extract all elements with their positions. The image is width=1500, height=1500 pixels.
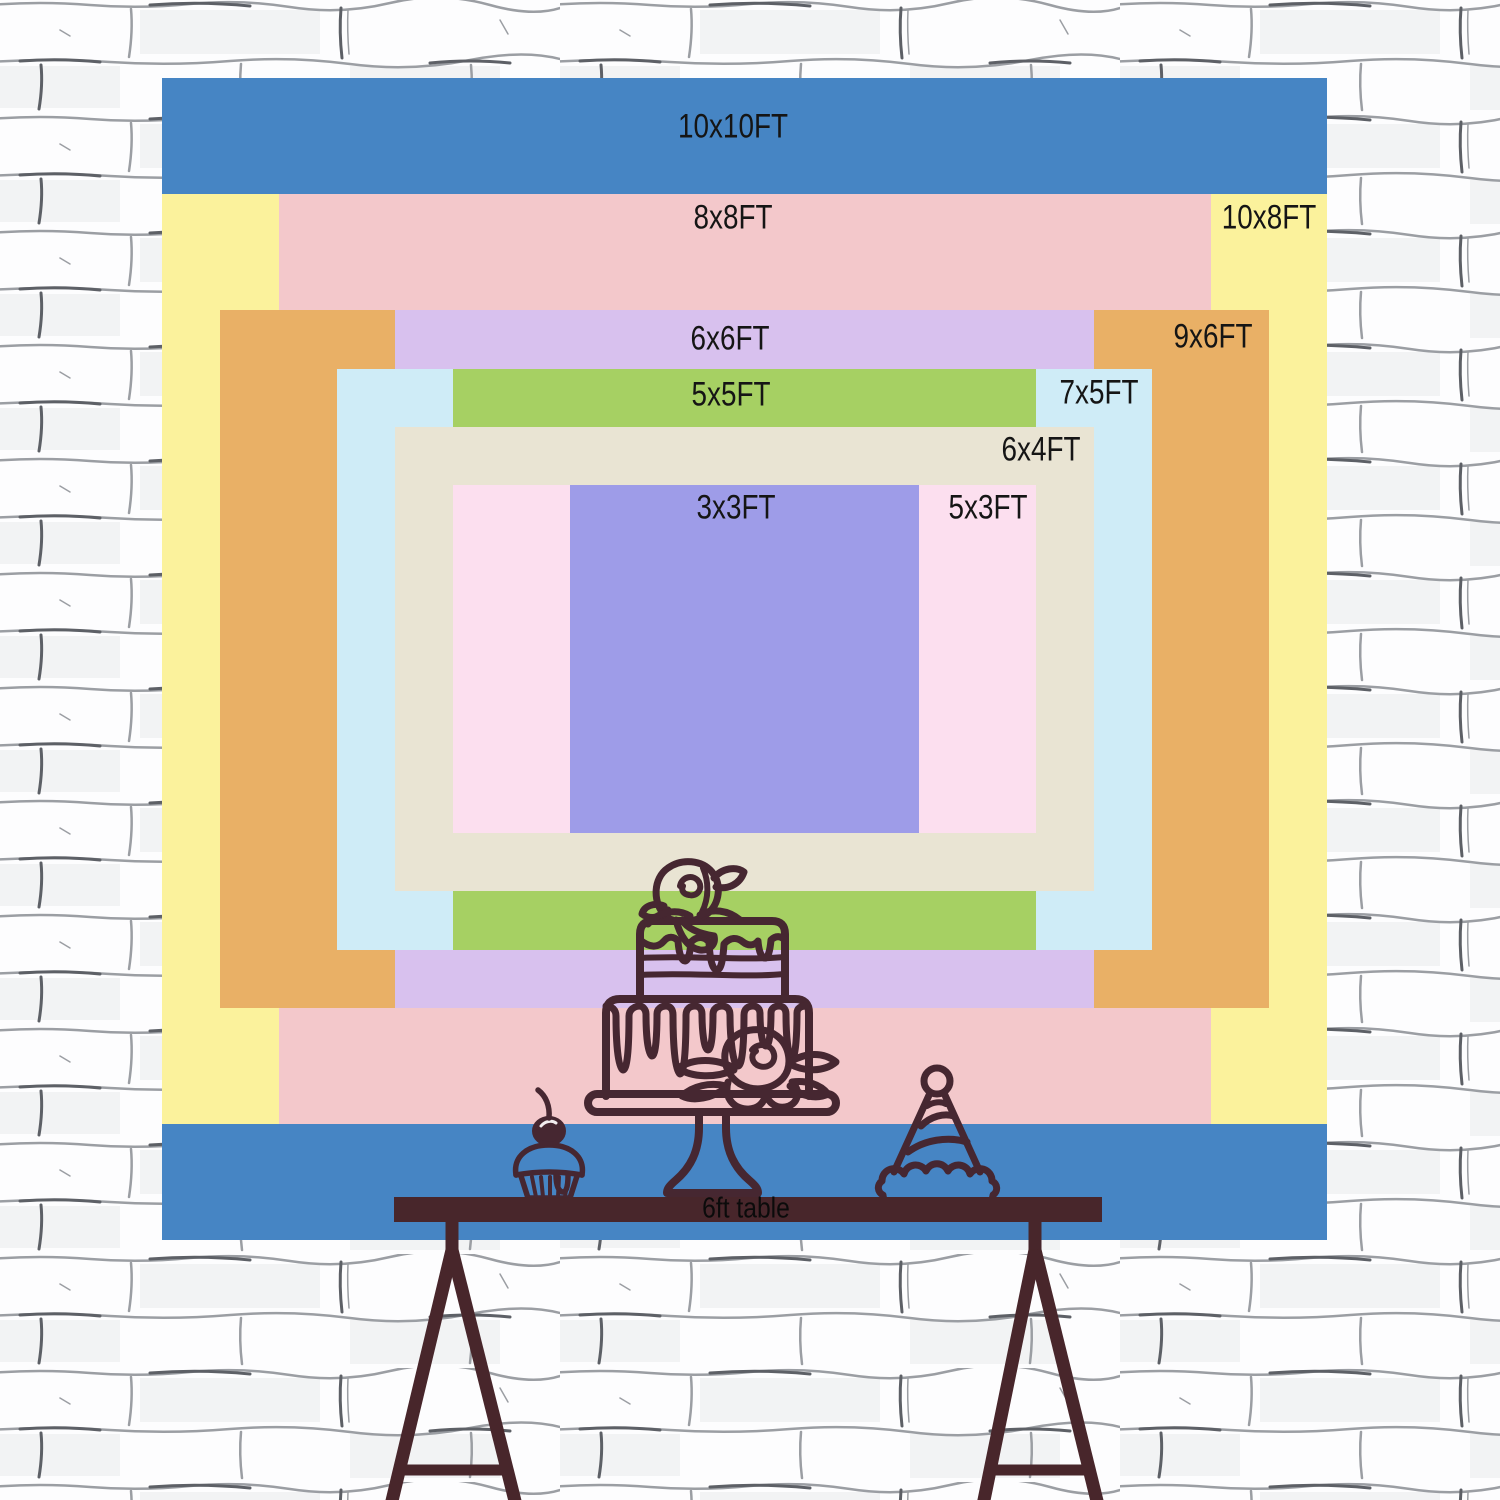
size-layer-3x3 [570, 485, 920, 834]
backdrop-size-chart-scene: 10x10FT10x8FT8x8FT9x6FT6x6FT7x5FT5x5FT6x… [0, 0, 1500, 1500]
table-size-label: 6ft table [702, 1193, 790, 1226]
nested-size-layers [162, 78, 1327, 1240]
